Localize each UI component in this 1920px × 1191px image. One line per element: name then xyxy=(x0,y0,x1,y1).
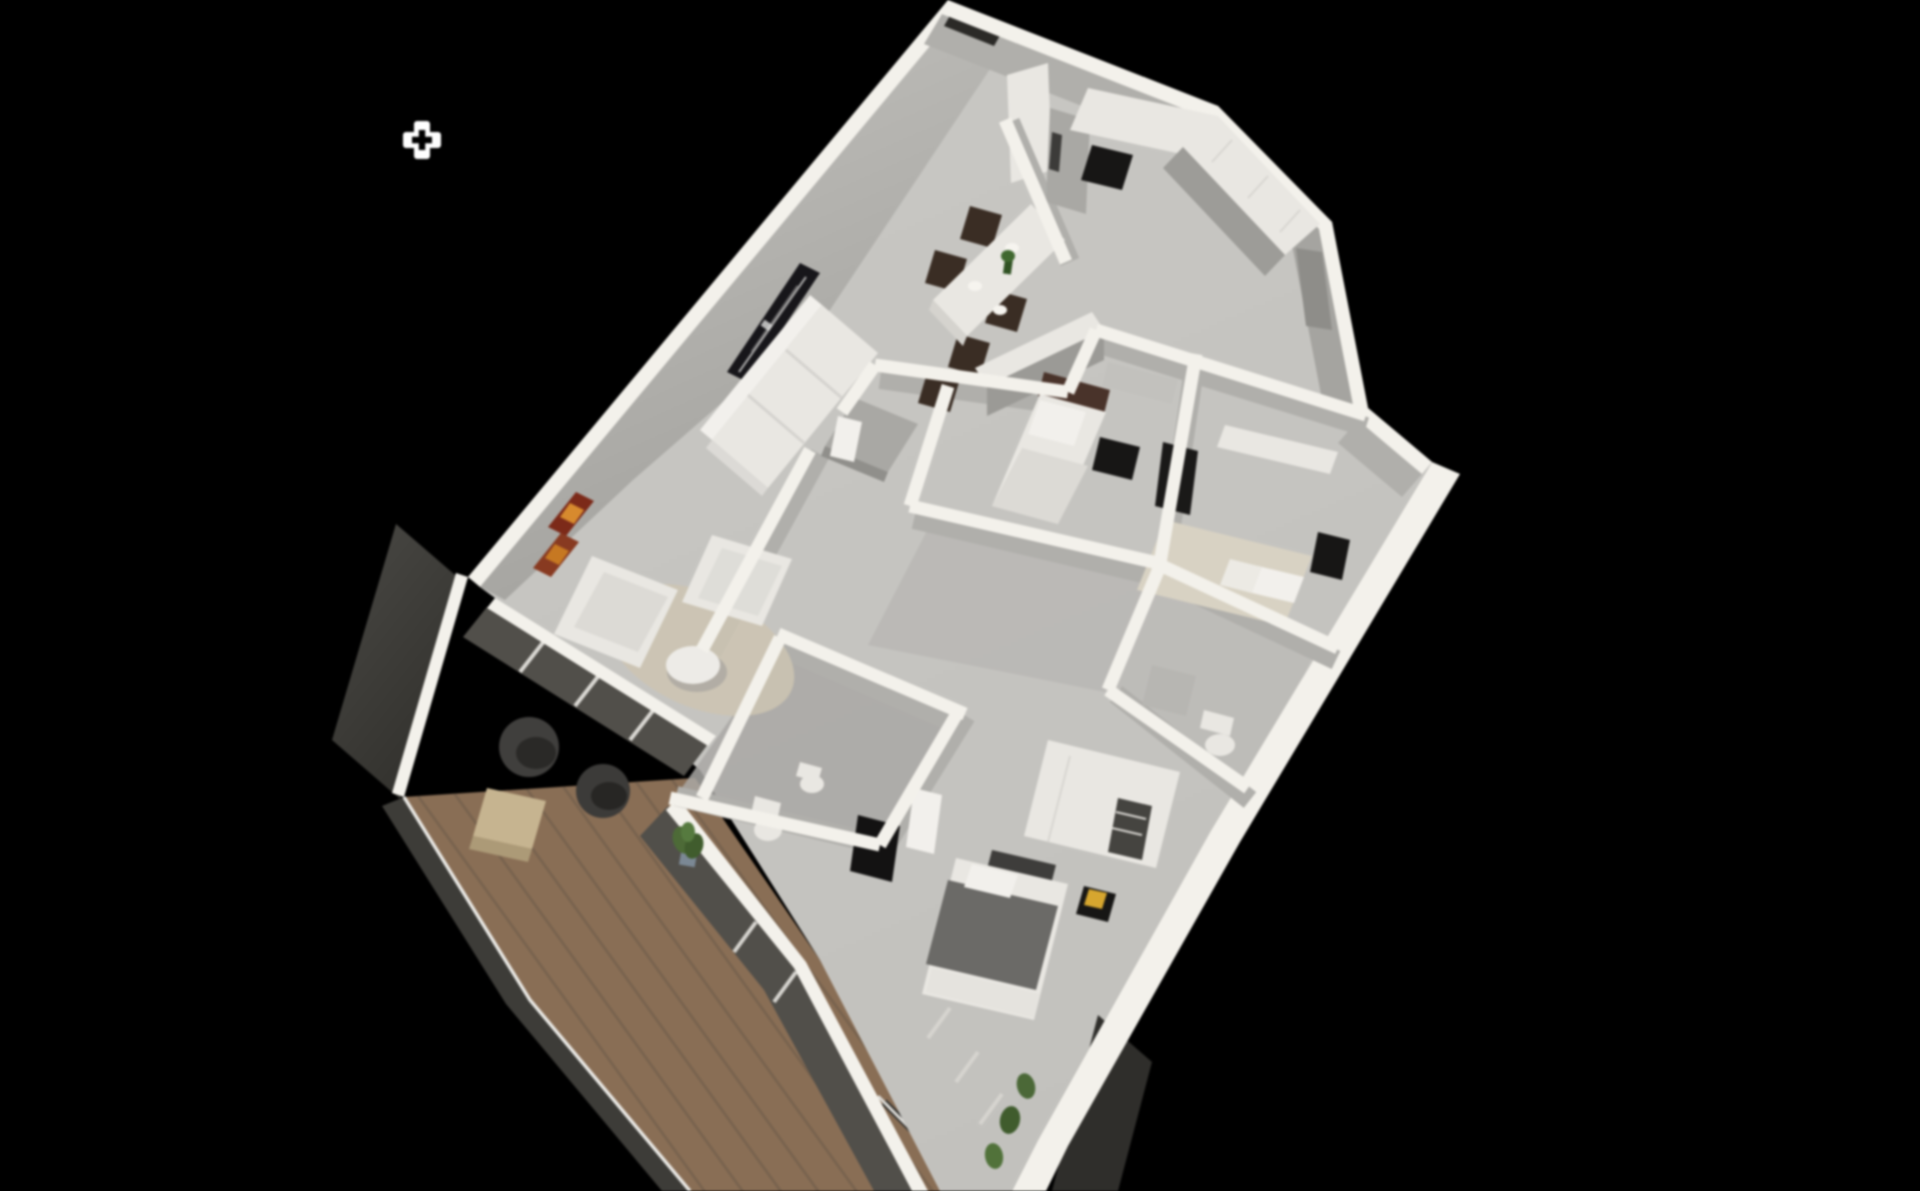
bidet xyxy=(800,775,824,793)
deck-chair xyxy=(576,764,630,818)
deck-chair xyxy=(499,717,559,777)
toilet xyxy=(1205,734,1235,756)
viewer-stage xyxy=(0,0,1920,1191)
floorplan-3d-view[interactable] xyxy=(0,0,1920,1191)
